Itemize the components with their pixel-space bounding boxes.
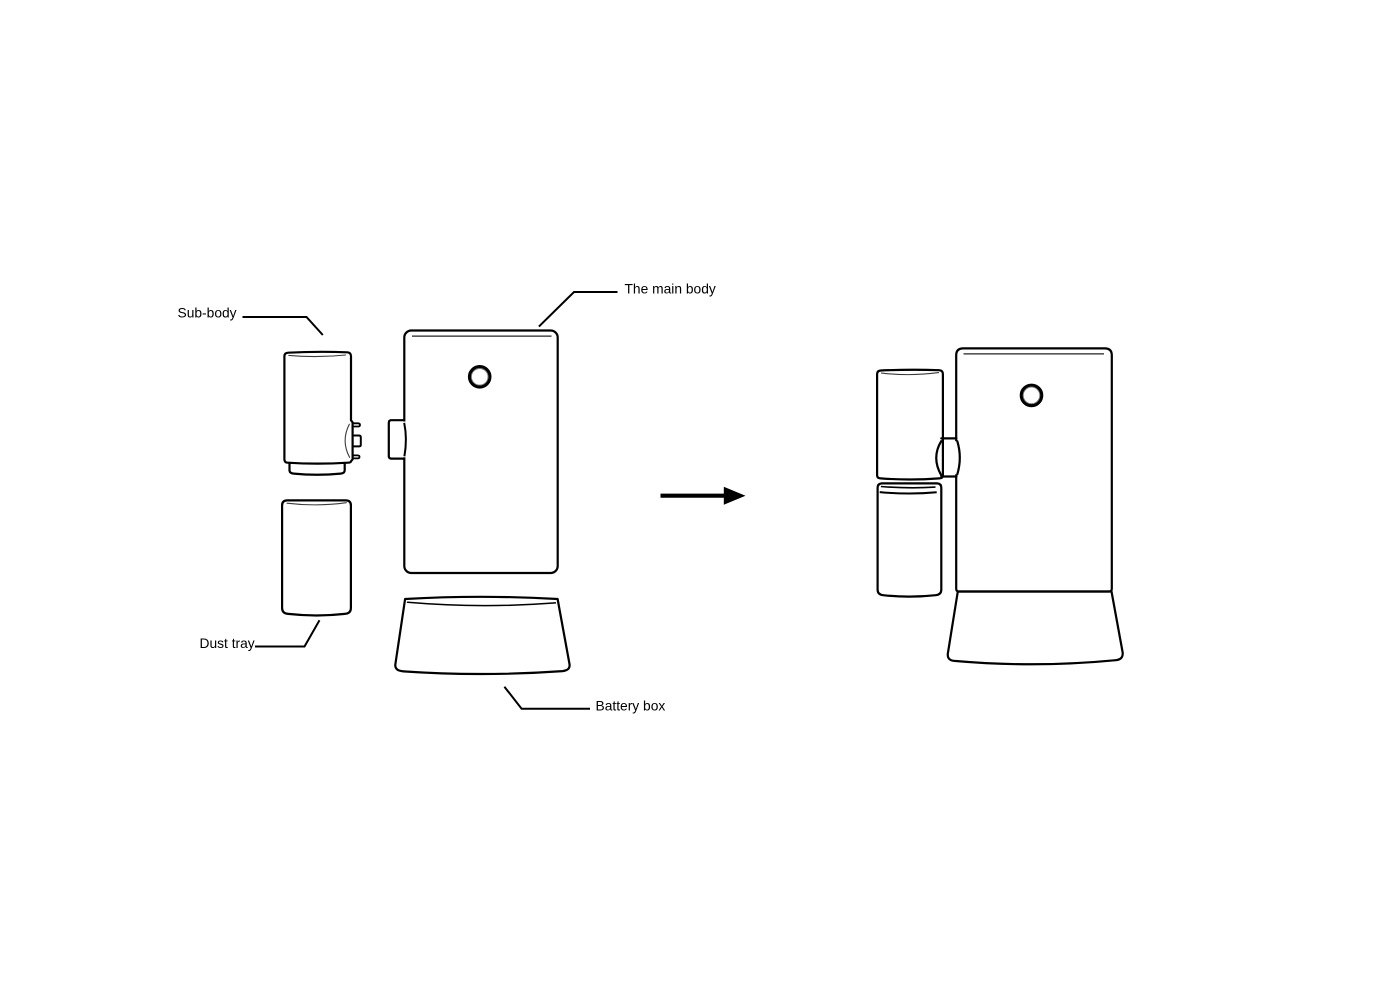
svg-text:The main body: The main body xyxy=(625,282,716,297)
svg-text:Sub-body: Sub-body xyxy=(178,305,237,320)
svg-text:Battery box: Battery box xyxy=(596,699,666,714)
svg-text:Dust tray: Dust tray xyxy=(200,636,255,651)
